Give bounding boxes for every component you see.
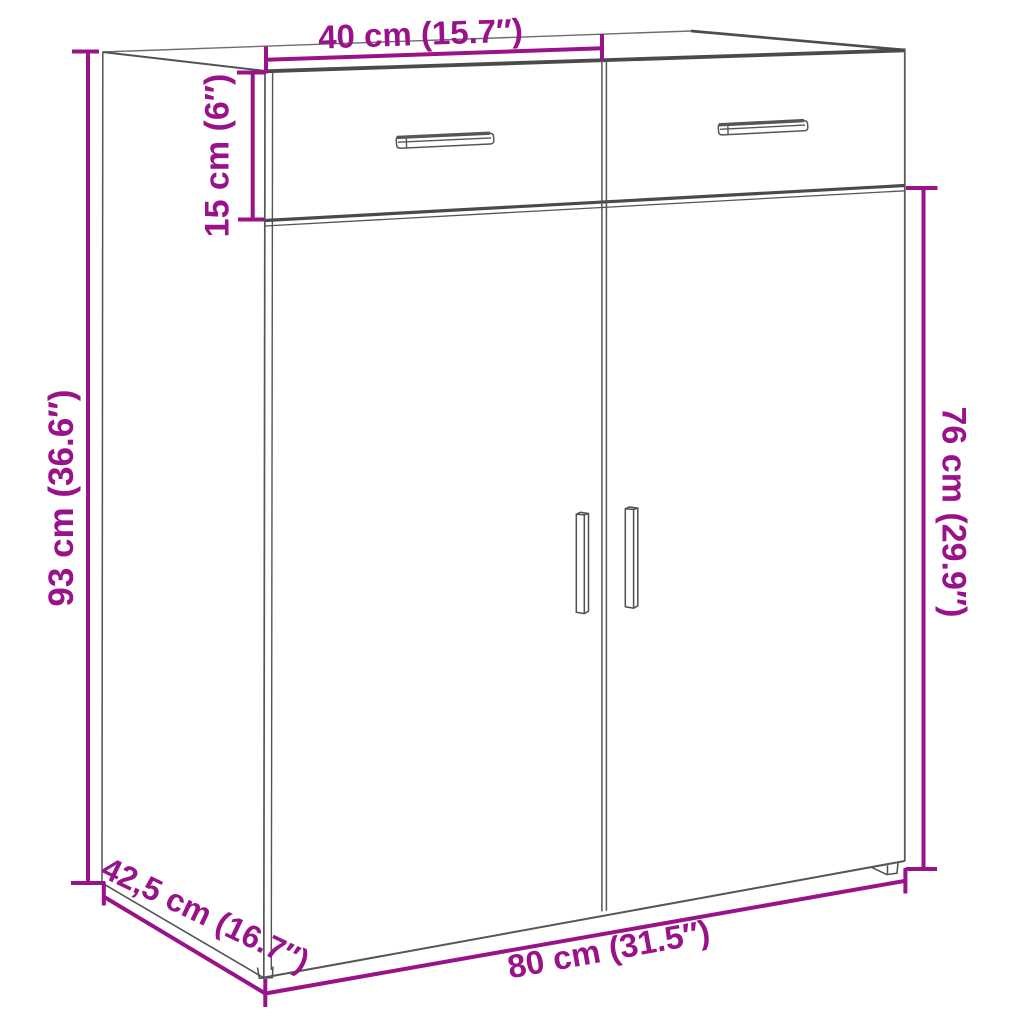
svg-text:93 cm (36.6″): 93 cm (36.6″): [42, 389, 81, 606]
svg-text:40 cm (15.7″): 40 cm (15.7″): [318, 11, 524, 55]
svg-text:76 cm (29.9″): 76 cm (29.9″): [935, 407, 973, 618]
svg-text:15 cm (6″): 15 cm (6″): [199, 74, 237, 238]
